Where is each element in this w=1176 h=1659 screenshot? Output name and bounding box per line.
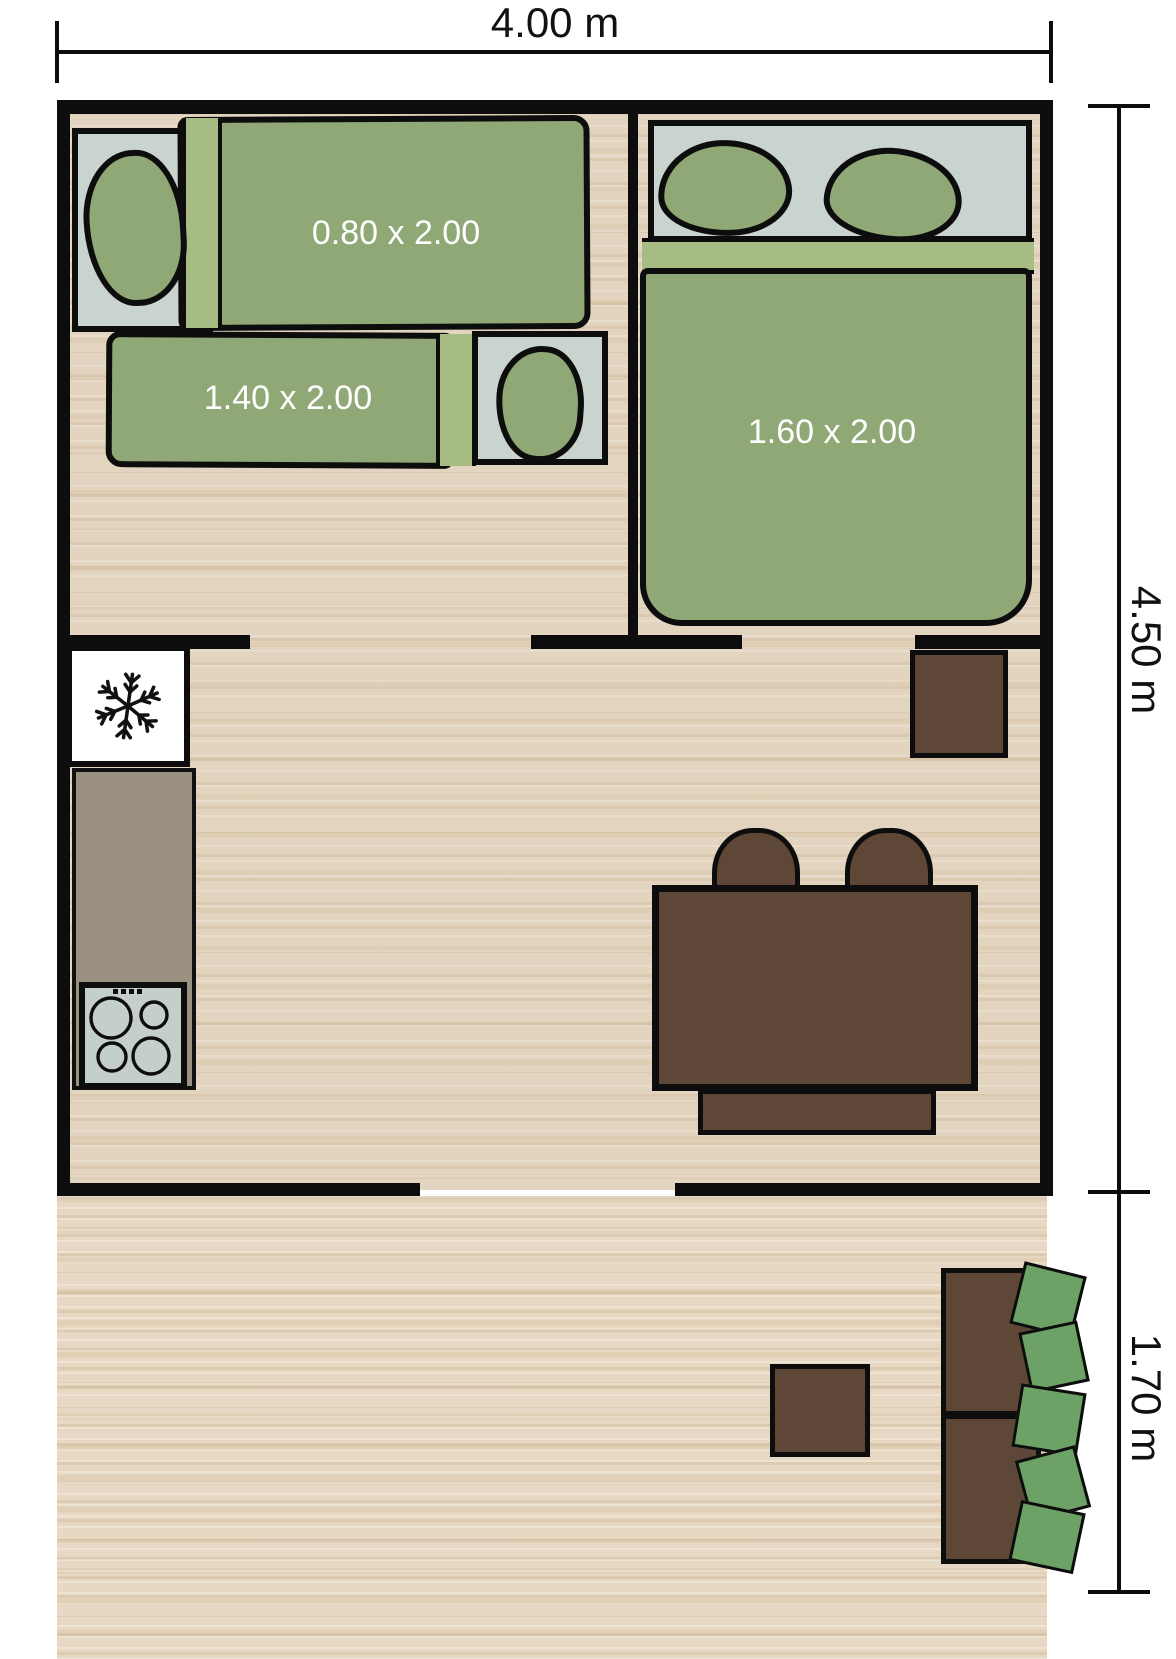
right-dimension-tick-top [1088,104,1150,108]
interior-wall-left-segment [57,635,250,649]
bush-2 [1018,1320,1090,1393]
dining-table [652,885,978,1091]
wall-bottom-right-segment [675,1183,1053,1196]
double-bed-size-label: 1.60 x 2.00 [748,415,916,449]
floor-plan-canvas: 4.00 m 4.50 m 1.70 m 0.80 x 2.00 1.40 x … [0,0,1176,1659]
fridge [66,645,190,767]
four-burner-stove-icon [85,988,181,1083]
nightstand [910,650,1008,758]
right-dimension-tick-bottom [1088,1590,1150,1594]
single-bed-fold-band [182,118,222,328]
small-double-bed-fold-band [436,334,476,466]
bedroom-divider-wall [628,113,638,649]
wall-bottom-left-segment [57,1183,420,1196]
terrace-side-table [770,1364,870,1457]
right-dimension-label-upper: 4.50 m [1125,586,1167,714]
interior-wall-right-segment [915,635,1053,649]
top-dimension-tick-left [55,21,59,83]
terrace-floor [57,1196,1047,1659]
bush-3 [1011,1383,1086,1457]
dining-bench [698,1089,936,1135]
top-dimension-line [57,50,1053,54]
wall-top [57,100,1053,114]
bush-5 [1008,1500,1085,1574]
right-dimension-label-lower: 1.70 m [1125,1334,1167,1462]
small-double-bed-size-label: 1.40 x 2.00 [204,381,372,415]
right-dimension-line [1117,104,1121,1594]
stove [79,982,187,1089]
right-dimension-tick-middle [1088,1190,1150,1194]
top-dimension-tick-right [1049,21,1053,83]
single-bed-size-label: 0.80 x 2.00 [312,216,480,250]
top-dimension-label: 4.00 m [405,2,705,44]
snowflake-icon [86,664,170,748]
